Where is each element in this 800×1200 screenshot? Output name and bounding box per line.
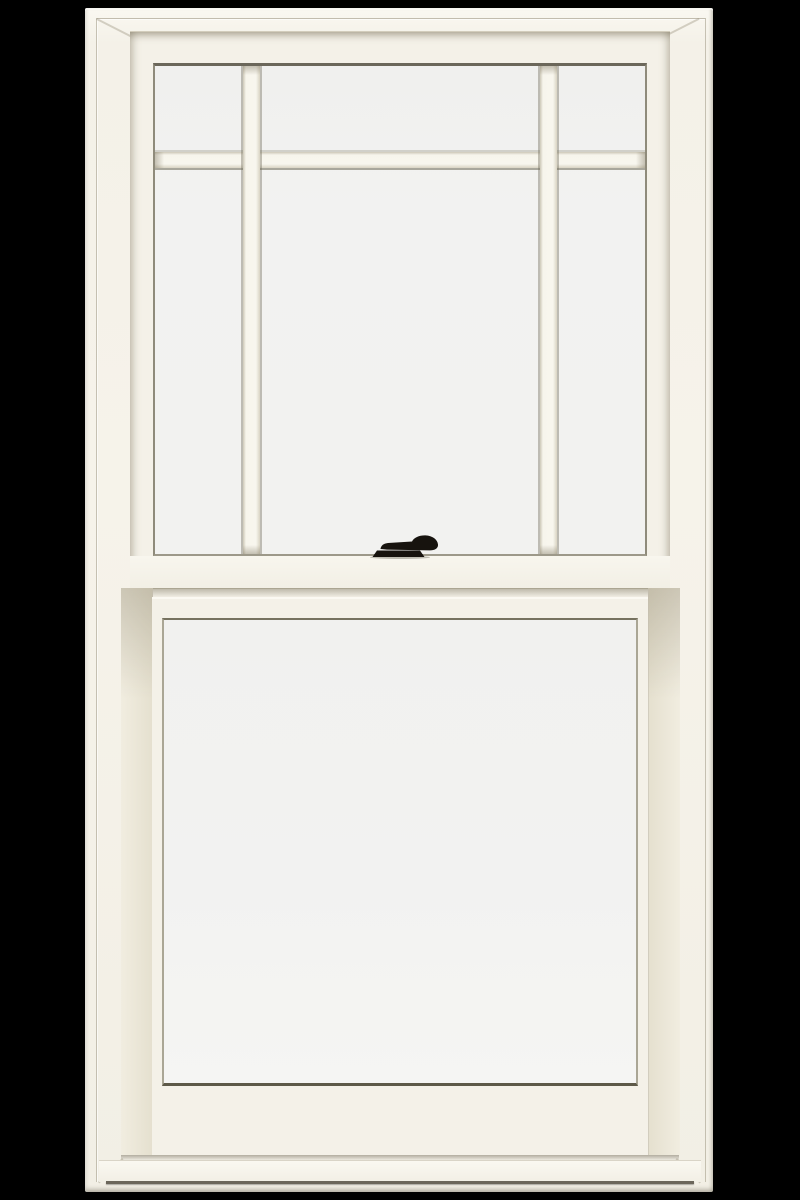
- grille-bar-vertical-right: [540, 66, 557, 554]
- photo-background: [0, 0, 800, 1200]
- sash-lock: [366, 530, 446, 560]
- sill-crease: [106, 1181, 694, 1184]
- jamb-liner-right: [648, 588, 680, 1155]
- sill: [99, 1160, 701, 1182]
- lower-sash-glass: [162, 618, 638, 1086]
- sash-lock-base: [373, 551, 425, 558]
- jamb-liner-left: [121, 588, 153, 1155]
- upper-sash-glass: [153, 63, 647, 556]
- grille-bar-vertical-left: [243, 66, 260, 554]
- check-rail: [130, 556, 670, 589]
- sash-lock-lever: [381, 535, 439, 550]
- meeting-rail-shadow: [121, 588, 679, 597]
- grille-bar-horizontal: [155, 152, 645, 168]
